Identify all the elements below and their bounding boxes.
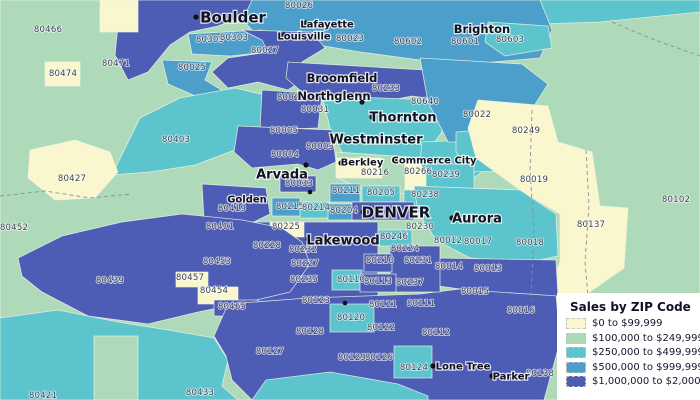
zip-label-80228: 80228 [253, 241, 281, 251]
city-label-lakewood: Lakewood [306, 234, 379, 249]
city-label-northglenn: Northglenn [297, 89, 370, 103]
zip-label-80474: 80474 [49, 69, 77, 79]
legend-title: Sales by ZIP Code [570, 300, 692, 314]
zip-label-80013: 80013 [474, 264, 502, 274]
zip-label-80465: 80465 [218, 302, 246, 312]
zip-label-80121: 80121 [369, 300, 397, 310]
zip-label-80205: 80205 [367, 188, 395, 198]
zip-label-80454: 80454 [200, 286, 228, 296]
zip-label-80014: 80014 [435, 262, 463, 272]
zip-label-80303: 80303 [220, 33, 248, 43]
region-cream-top[interactable] [100, 0, 138, 32]
zip-label-80210: 80210 [366, 256, 394, 266]
legend-label-4: $1,000,000 to $2,000,000 [592, 376, 700, 387]
zip-label-80016: 80016 [507, 306, 535, 316]
zip-label-80433: 80433 [186, 388, 214, 398]
zip-label-80227: 80227 [291, 259, 319, 269]
zip-label-80124: 80124 [400, 363, 428, 373]
zip-label-80239: 80239 [432, 170, 460, 180]
city-label-boulder: Boulder [200, 8, 266, 26]
region-green-strip[interactable] [94, 336, 138, 400]
map-point-1 [308, 190, 313, 195]
zip-label-80137: 80137 [577, 220, 605, 230]
zip-label-80452: 80452 [0, 223, 28, 233]
zip-label-80102: 80102 [662, 195, 690, 205]
city-label-thornton: Thornton [369, 111, 436, 126]
city-label-aurora: Aurora [452, 212, 502, 227]
city-label-louisville: Louisville [277, 32, 331, 43]
legend-item-1: $100,000 to $249,999 [566, 333, 692, 344]
zip-label-80120: 80120 [337, 313, 365, 323]
city-label-denver: DENVER [362, 203, 431, 221]
zip-label-80466: 80466 [34, 25, 62, 35]
zip-label-80018: 80018 [516, 238, 544, 248]
zip-label-80602: 80602 [394, 37, 422, 47]
city-label-broomfield: Broomfield [307, 71, 378, 85]
zip-label-80266: 80266 [404, 167, 432, 177]
city-label-berkley: Berkley [341, 158, 384, 169]
zip-label-80123: 80123 [302, 296, 330, 306]
zip-label-80427: 80427 [58, 174, 86, 184]
legend-panel: Sales by ZIP Code $0 to $99,999$100,000 … [557, 293, 700, 400]
legend-label-3: $500,000 to $999,999 [592, 362, 700, 373]
legend-rows: $0 to $99,999$100,000 to $249,999$250,00… [566, 318, 692, 387]
zip-label-80023: 80023 [336, 34, 364, 44]
zip-label-80126: 80126 [365, 353, 393, 363]
zip-label-80111: 80111 [407, 299, 435, 309]
zip-label-80113: 80113 [364, 277, 392, 287]
legend-swatch-4 [566, 376, 586, 387]
map-point-2 [343, 301, 348, 306]
legend-swatch-2 [566, 347, 586, 358]
zip-label-80439: 80439 [96, 276, 124, 286]
legend-swatch-1 [566, 333, 586, 344]
zip-label-80214: 80214 [302, 203, 330, 213]
zip-label-80224: 80224 [391, 244, 419, 254]
zip-label-80211: 80211 [332, 186, 360, 196]
zip-label-80031: 80031 [301, 105, 329, 115]
zip-label-80017: 80017 [464, 237, 492, 247]
zip-label-80025: 80025 [178, 63, 206, 73]
zip-label-80603: 80603 [496, 35, 524, 45]
zip-label-80127: 80127 [256, 347, 284, 357]
city-label-golden: Golden [227, 195, 267, 206]
city-label-brighton: Brighton [454, 22, 510, 36]
zip-label-80005: 80005 [270, 126, 298, 136]
zip-label-80401: 80401 [206, 222, 234, 232]
zip-label-80249: 80249 [512, 126, 540, 136]
zip-label-80026: 80026 [285, 1, 313, 11]
map-point-0 [360, 100, 365, 105]
city-label-commerce-city: Commerce City [391, 156, 477, 167]
zip-label-80233: 80233 [372, 84, 400, 94]
zip-label-80230: 80230 [406, 222, 434, 232]
map-canvas: 8046680474804718030580303800268002580027… [0, 0, 700, 400]
zip-label-80471: 80471 [102, 59, 130, 69]
zip-label-80231: 80231 [404, 256, 432, 266]
zip-label-80015: 80015 [461, 287, 489, 297]
zip-label-80453: 80453 [203, 257, 231, 267]
legend-item-3: $500,000 to $999,999 [566, 362, 692, 373]
zip-label-80246: 80246 [380, 232, 408, 242]
zip-label-80138: 80138 [526, 369, 554, 379]
zip-label-80601: 80601 [451, 37, 479, 47]
city-dot-boulder [193, 14, 198, 19]
zip-label-80110: 80110 [337, 275, 365, 285]
zip-label-80225: 80225 [272, 222, 300, 232]
zip-label-80112: 80112 [422, 328, 450, 338]
zip-label-80012: 80012 [434, 236, 462, 246]
city-label-lone-tree: Lone Tree [436, 362, 491, 373]
legend-label-0: $0 to $99,999 [592, 318, 662, 329]
legend-swatch-3 [566, 362, 586, 373]
zip-label-80004: 80004 [271, 150, 299, 160]
zip-label-80128: 80128 [296, 327, 324, 337]
zip-label-80237: 80237 [396, 278, 424, 288]
legend-item-2: $250,000 to $499,999 [566, 347, 692, 358]
zip-label-80403: 80403 [162, 135, 190, 145]
zip-label-80019: 80019 [520, 175, 548, 185]
legend-label-1: $100,000 to $249,999 [592, 333, 700, 344]
zip-label-80238: 80238 [411, 190, 439, 200]
zip-label-80457: 80457 [176, 273, 204, 283]
zip-label-80204: 80204 [330, 206, 358, 216]
region-80124-teal[interactable] [394, 346, 432, 378]
city-label-lafayette: Lafayette [300, 20, 354, 31]
zip-label-80129: 80129 [338, 353, 366, 363]
zip-label-80421: 80421 [29, 391, 57, 400]
zip-label-80216: 80216 [361, 168, 389, 178]
zip-label-80027: 80027 [251, 46, 279, 56]
legend-swatch-0 [566, 318, 586, 329]
zip-label-80640: 80640 [411, 97, 439, 107]
zip-label-80215: 80215 [276, 202, 304, 212]
legend-item-0: $0 to $99,999 [566, 318, 692, 329]
zip-label-80122: 80122 [367, 323, 395, 333]
zip-label-80235: 80235 [290, 275, 318, 285]
city-label-parker: Parker [493, 372, 530, 383]
zip-label-80022: 80022 [463, 110, 491, 120]
legend-label-2: $250,000 to $499,999 [592, 347, 700, 358]
city-label-westminster: Westminster [329, 133, 423, 148]
legend-item-4: $1,000,000 to $2,000,000 [566, 376, 692, 387]
city-label-arvada: Arvada [256, 168, 308, 183]
